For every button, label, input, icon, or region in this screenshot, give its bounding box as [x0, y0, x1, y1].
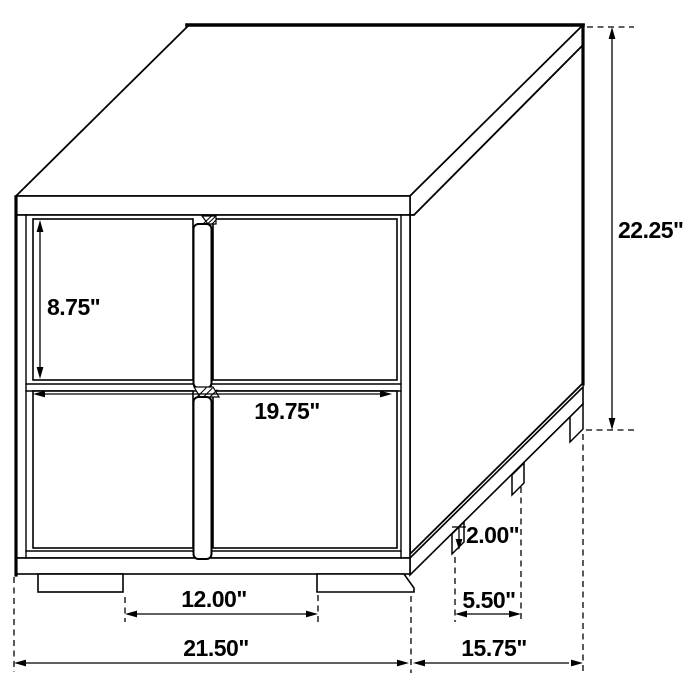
dimension-label-top-drawer-height: 8.75" [47, 294, 100, 320]
nightstand-dimension-diagram: 8.75" 19.75" 22.25" 2.00" [0, 0, 700, 700]
dimension-label-base-height: 2.00" [466, 522, 519, 548]
arrowhead-up [609, 27, 616, 39]
dimension-label-overall-width: 21.50" [183, 635, 248, 661]
front-foot-left [38, 574, 123, 592]
dimension-overall-height: 22.25" [586, 27, 683, 430]
arrowhead-left [413, 660, 425, 667]
drawer-panel-top-right [213, 219, 397, 380]
front-foot-right [317, 574, 414, 592]
arrowhead-left [14, 660, 26, 667]
front-base-rail [16, 558, 410, 574]
nightstand-drawing [16, 25, 583, 592]
dimension-label-overall-height: 22.25" [618, 217, 683, 243]
dimension-label-side-feet-spacing: 5.50" [462, 587, 515, 613]
dimension-front-feet-spacing: 12.00" [125, 586, 318, 622]
arrowhead-left [125, 611, 137, 618]
drawer-handle-bottom [194, 397, 212, 559]
drawer-panel-bottom-left [33, 391, 193, 548]
arrowhead-down [609, 418, 616, 430]
arrowhead-right [306, 611, 318, 618]
arrowhead-right [397, 660, 409, 667]
top-front-edge [16, 196, 410, 215]
dimension-diagram-canvas: 8.75" 19.75" 22.25" 2.00" [0, 0, 700, 700]
drawer-handle-top [194, 224, 212, 388]
dimension-label-drawer-width: 19.75" [254, 398, 319, 424]
dimension-label-front-feet-spacing: 12.00" [181, 586, 246, 612]
dimension-label-overall-depth: 15.75" [461, 635, 526, 661]
arrowhead-right [571, 660, 583, 667]
